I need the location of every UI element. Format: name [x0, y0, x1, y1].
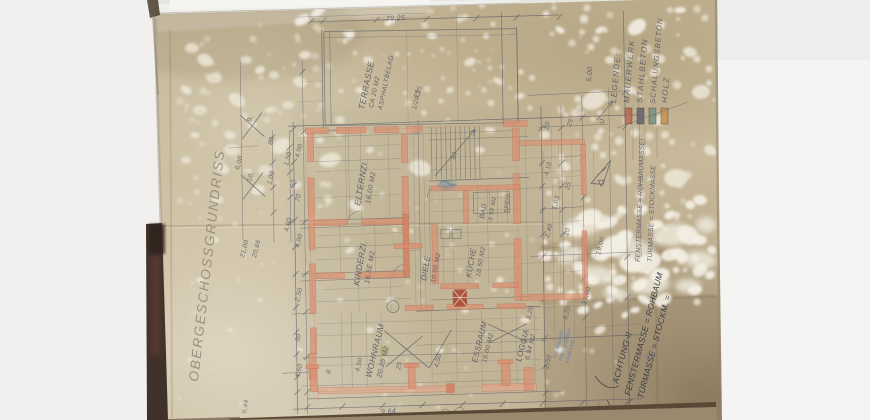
svg-text:79,25: 79,25 [386, 15, 406, 23]
svg-text:5,00: 5,00 [586, 66, 594, 82]
